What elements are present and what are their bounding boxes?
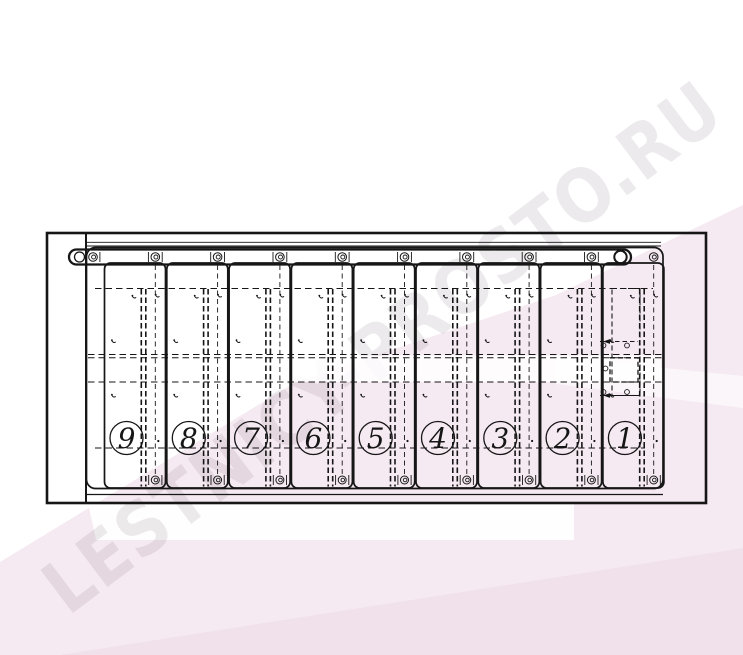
screw-inner xyxy=(279,255,283,259)
screw-inner xyxy=(341,478,345,482)
hook-mark-icon xyxy=(256,295,261,298)
screw-inner xyxy=(403,255,407,259)
latch-screw-icon xyxy=(625,390,630,395)
pivot-dot xyxy=(656,440,658,442)
panel-number-2: 2 xyxy=(553,422,572,455)
hook-mark-icon xyxy=(443,295,448,298)
hook-mark-icon xyxy=(236,339,241,342)
hook-mark-icon xyxy=(279,294,284,297)
hook-dot xyxy=(529,294,531,296)
hook-mark-icon xyxy=(360,394,365,397)
hook-dot xyxy=(547,394,549,396)
pivot-dot xyxy=(469,440,471,442)
bottom-screw-icon xyxy=(460,475,473,485)
screw-inner xyxy=(590,478,594,482)
hook-mark-icon xyxy=(591,294,596,297)
hook-dot xyxy=(256,295,258,297)
hook-mark-icon xyxy=(194,295,199,298)
hook-mark-icon xyxy=(173,339,178,342)
bottom-screw-icon xyxy=(211,475,224,485)
hook-mark-icon xyxy=(298,394,303,397)
arrow-left-icon xyxy=(603,393,610,398)
hook-mark-icon xyxy=(505,295,510,298)
hook-mark-icon xyxy=(360,339,365,342)
hook-dot xyxy=(360,394,362,396)
hook-mark-icon xyxy=(547,339,552,342)
panel-number-8: 8 xyxy=(180,422,198,455)
hook-mark-icon xyxy=(653,294,658,297)
pivot-dot xyxy=(220,440,222,442)
hook-dot xyxy=(318,295,320,297)
screw-inner xyxy=(465,255,469,259)
hook-mark-icon xyxy=(381,295,386,298)
hook-dot xyxy=(236,394,238,396)
panel-number-9: 9 xyxy=(118,422,136,455)
bottom-screw-icon xyxy=(585,475,598,485)
rod-screw-icon xyxy=(86,252,100,262)
bottom-screw-icon xyxy=(149,475,162,485)
hook-mark-icon xyxy=(318,295,323,298)
hook-dot xyxy=(194,295,196,297)
hook-dot xyxy=(466,294,468,296)
screw-inner xyxy=(216,478,220,482)
screw-inner xyxy=(341,255,345,259)
screw-inner xyxy=(92,255,96,259)
screw-inner xyxy=(466,478,470,482)
bottom-screw-icon xyxy=(523,475,536,485)
screw-inner xyxy=(154,255,158,259)
rod-end-cap-left xyxy=(75,252,85,262)
hook-dot xyxy=(505,295,507,297)
pivot-dot xyxy=(157,440,159,442)
hook-mark-icon xyxy=(173,394,178,397)
pivot-dot xyxy=(406,440,408,442)
hook-mark-icon xyxy=(342,294,347,297)
hook-mark-icon xyxy=(630,295,635,298)
hook-mark-icon xyxy=(111,339,116,342)
pivot-dot xyxy=(282,440,284,442)
screw-inner xyxy=(216,255,220,259)
screw-inner xyxy=(279,478,283,482)
hook-dot xyxy=(547,339,549,341)
screw-inner xyxy=(590,255,594,259)
hook-mark-icon xyxy=(423,394,428,397)
hook-mark-icon xyxy=(236,394,241,397)
rod-screw-icon xyxy=(211,252,225,262)
pivot-dot xyxy=(344,440,346,442)
hook-dot xyxy=(443,295,445,297)
pivot-dot xyxy=(531,440,533,442)
rod-end-cap-right xyxy=(614,251,626,263)
corner-screw-icon xyxy=(649,253,658,262)
hook-dot xyxy=(298,394,300,396)
hook-dot xyxy=(630,295,632,297)
hook-dot xyxy=(423,339,425,341)
rod-screw-icon xyxy=(460,252,474,262)
bottom-screw-icon xyxy=(398,475,411,485)
screw-inner xyxy=(403,478,407,482)
hook-dot xyxy=(381,295,383,297)
hook-dot xyxy=(111,339,113,341)
hook-dot xyxy=(342,294,344,296)
hook-dot xyxy=(360,339,362,341)
rod-screw-icon xyxy=(585,252,599,262)
screw-inner xyxy=(652,255,656,259)
hook-dot xyxy=(404,294,406,296)
hook-mark-icon xyxy=(298,339,303,342)
hook-mark-icon xyxy=(132,295,137,298)
hook-dot xyxy=(279,294,281,296)
hook-mark-icon xyxy=(111,394,116,397)
hook-mark-icon xyxy=(485,394,490,397)
panel-number-5: 5 xyxy=(367,422,385,455)
screw-inner xyxy=(653,478,657,482)
hook-mark-icon xyxy=(423,339,428,342)
rod-screw-icon xyxy=(148,252,162,262)
staircase-assembly-drawing: 987654321 xyxy=(0,0,743,655)
rod-screw-icon xyxy=(522,252,536,262)
rod-screw-icon xyxy=(398,252,412,262)
hook-dot xyxy=(568,295,570,297)
hook-dot xyxy=(423,394,425,396)
latch-screw-icon xyxy=(625,343,630,348)
pivot-dot xyxy=(593,440,595,442)
hook-mark-icon xyxy=(568,295,573,298)
page: LESTNICY-PROSTO.RU 987654321 xyxy=(0,0,743,655)
bottom-screw-icon xyxy=(647,475,660,485)
hook-mark-icon xyxy=(404,294,409,297)
hook-dot xyxy=(111,394,113,396)
hook-dot xyxy=(173,339,175,341)
hook-dot xyxy=(591,294,593,296)
hook-dot xyxy=(298,339,300,341)
hook-mark-icon xyxy=(466,294,471,297)
panel-number-3: 3 xyxy=(491,422,509,455)
hook-dot xyxy=(653,294,655,296)
panel-number-4: 4 xyxy=(428,422,447,455)
screw-inner xyxy=(528,255,532,259)
panel-number-6: 6 xyxy=(304,422,322,455)
panel-number-7: 7 xyxy=(242,422,260,455)
screw-inner xyxy=(154,478,158,482)
hook-dot xyxy=(217,294,219,296)
screw-inner xyxy=(528,478,532,482)
bottom-screw-icon xyxy=(273,475,286,485)
hook-mark-icon xyxy=(547,394,552,397)
hook-mark-icon xyxy=(485,339,490,342)
hook-dot xyxy=(155,294,157,296)
hook-dot xyxy=(132,295,134,297)
hook-dot xyxy=(485,394,487,396)
bottom-screw-icon xyxy=(336,475,349,485)
hook-dot xyxy=(173,394,175,396)
hook-dot xyxy=(485,339,487,341)
panel-number-1: 1 xyxy=(616,422,634,455)
hook-mark-icon xyxy=(217,294,222,297)
platform-band xyxy=(88,356,661,383)
hook-mark-icon xyxy=(155,294,160,297)
rod-screw-icon xyxy=(335,252,349,262)
rod-screw-icon xyxy=(273,252,287,262)
hook-dot xyxy=(236,339,238,341)
hook-mark-icon xyxy=(529,294,534,297)
